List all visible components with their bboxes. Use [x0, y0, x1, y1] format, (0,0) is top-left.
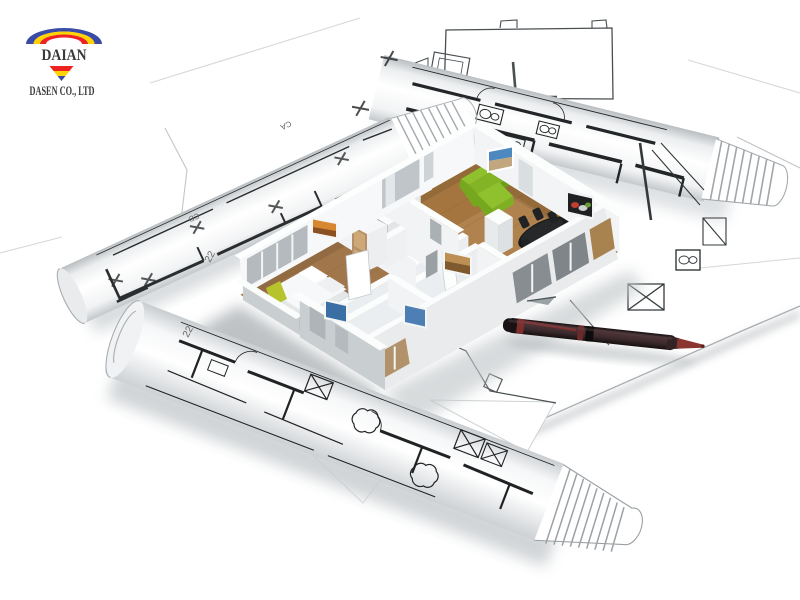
svg-text:DAIAN: DAIAN [42, 47, 87, 64]
svg-text:DASEN CO., LTD: DASEN CO., LTD [30, 84, 95, 98]
